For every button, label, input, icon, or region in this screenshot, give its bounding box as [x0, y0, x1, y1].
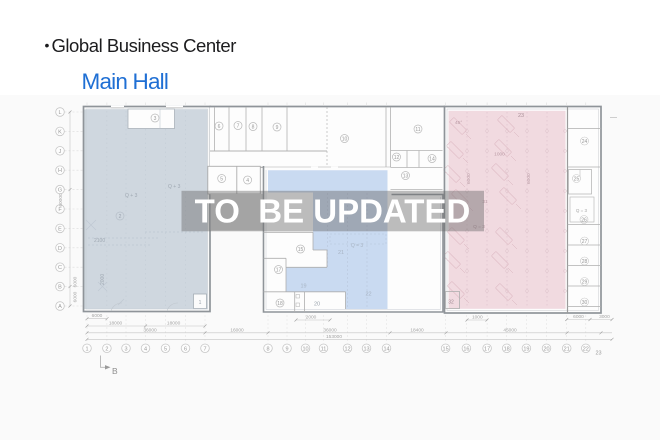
- svg-text:3000: 3000: [599, 314, 610, 320]
- svg-text:45000: 45000: [503, 327, 517, 333]
- svg-text:29: 29: [582, 279, 588, 285]
- svg-text:11: 11: [415, 127, 420, 133]
- svg-text:19: 19: [523, 346, 529, 352]
- svg-text:21: 21: [564, 346, 570, 352]
- svg-text:26: 26: [581, 217, 587, 223]
- svg-text:3: 3: [124, 346, 127, 352]
- svg-text:32: 32: [448, 300, 454, 306]
- svg-text:1: 1: [85, 346, 88, 352]
- svg-text:4: 4: [246, 178, 249, 184]
- svg-text:6: 6: [184, 346, 187, 352]
- svg-text:7: 7: [237, 123, 240, 129]
- svg-text:H: H: [58, 168, 62, 174]
- svg-text:18400: 18400: [410, 327, 424, 333]
- svg-text:A: A: [58, 304, 62, 310]
- svg-text:6000: 6000: [73, 276, 79, 287]
- svg-text:20: 20: [543, 346, 549, 352]
- svg-text:153000: 153000: [326, 334, 342, 340]
- svg-text:1000: 1000: [494, 152, 505, 158]
- svg-text:24: 24: [582, 139, 588, 145]
- svg-text:2100: 2100: [94, 238, 105, 244]
- svg-text:8: 8: [252, 124, 255, 130]
- svg-text:2: 2: [119, 214, 122, 220]
- svg-text:17: 17: [276, 267, 282, 273]
- svg-text:B: B: [58, 285, 62, 291]
- svg-text:18000: 18000: [167, 321, 181, 327]
- svg-text:TO BE UPDATED: TO BE UPDATED: [195, 193, 471, 230]
- svg-text:21: 21: [338, 250, 344, 256]
- svg-text:14: 14: [383, 346, 389, 352]
- svg-text:16000: 16000: [230, 327, 244, 333]
- svg-text:9: 9: [285, 346, 288, 352]
- svg-text:Q = 3: Q = 3: [576, 208, 588, 213]
- svg-text:G: G: [58, 188, 62, 194]
- svg-text:6: 6: [218, 124, 221, 130]
- svg-text:13: 13: [363, 346, 369, 352]
- svg-text:8: 8: [266, 346, 269, 352]
- svg-text:12: 12: [344, 346, 350, 352]
- svg-text:4: 4: [144, 346, 147, 352]
- svg-text:Q + 3: Q + 3: [168, 184, 181, 190]
- svg-text:Q = 3: Q = 3: [351, 243, 364, 249]
- svg-text:23: 23: [595, 351, 601, 357]
- svg-text:14: 14: [429, 156, 435, 162]
- svg-text:15: 15: [298, 247, 304, 253]
- svg-text:6000: 6000: [466, 173, 472, 184]
- svg-text:J: J: [59, 149, 62, 155]
- svg-text:9: 9: [276, 125, 279, 131]
- svg-text:36000: 36000: [143, 327, 157, 333]
- svg-text:27: 27: [582, 239, 588, 245]
- svg-text:11: 11: [321, 346, 327, 352]
- svg-text:3: 3: [154, 116, 157, 122]
- svg-text:20: 20: [314, 302, 320, 308]
- svg-text:6000: 6000: [526, 173, 532, 184]
- svg-text:Q + 3: Q + 3: [125, 193, 138, 199]
- svg-text:13: 13: [403, 173, 409, 179]
- svg-text:E: E: [58, 226, 62, 232]
- svg-text:30: 30: [582, 300, 588, 306]
- svg-text:19: 19: [300, 284, 306, 290]
- svg-text:18: 18: [277, 301, 283, 307]
- svg-text:36000: 36000: [323, 327, 337, 333]
- svg-text:22: 22: [365, 292, 371, 298]
- svg-text:B: B: [112, 366, 118, 376]
- svg-text:10: 10: [342, 136, 348, 142]
- svg-text:18000: 18000: [109, 321, 123, 327]
- svg-text:5: 5: [220, 176, 223, 182]
- svg-text:1: 1: [199, 300, 202, 306]
- svg-text:5: 5: [164, 346, 167, 352]
- svg-text:60000: 60000: [58, 193, 64, 207]
- svg-text:2000: 2000: [100, 274, 106, 285]
- svg-text:17: 17: [484, 346, 490, 352]
- svg-text:18: 18: [504, 346, 510, 352]
- svg-text:K: K: [58, 129, 62, 135]
- svg-text:10: 10: [302, 346, 308, 352]
- svg-text:6000: 6000: [573, 314, 584, 320]
- svg-text:L: L: [58, 110, 61, 116]
- svg-text:15: 15: [443, 346, 449, 352]
- svg-text:12: 12: [394, 155, 400, 161]
- svg-text:23: 23: [518, 113, 524, 119]
- svg-text:6000: 6000: [73, 291, 79, 302]
- svg-text:6000: 6000: [92, 313, 103, 319]
- svg-text:1000: 1000: [472, 315, 483, 321]
- svg-text:C: C: [58, 265, 62, 271]
- svg-text:25: 25: [574, 176, 580, 182]
- svg-text:16: 16: [463, 346, 469, 352]
- svg-text:2000: 2000: [306, 315, 317, 321]
- svg-text:D: D: [58, 246, 62, 252]
- svg-text:7: 7: [203, 346, 206, 352]
- svg-text:2: 2: [105, 346, 108, 352]
- svg-text:22: 22: [583, 346, 589, 352]
- svg-text:28: 28: [582, 259, 588, 265]
- svg-text:45°: 45°: [455, 120, 462, 126]
